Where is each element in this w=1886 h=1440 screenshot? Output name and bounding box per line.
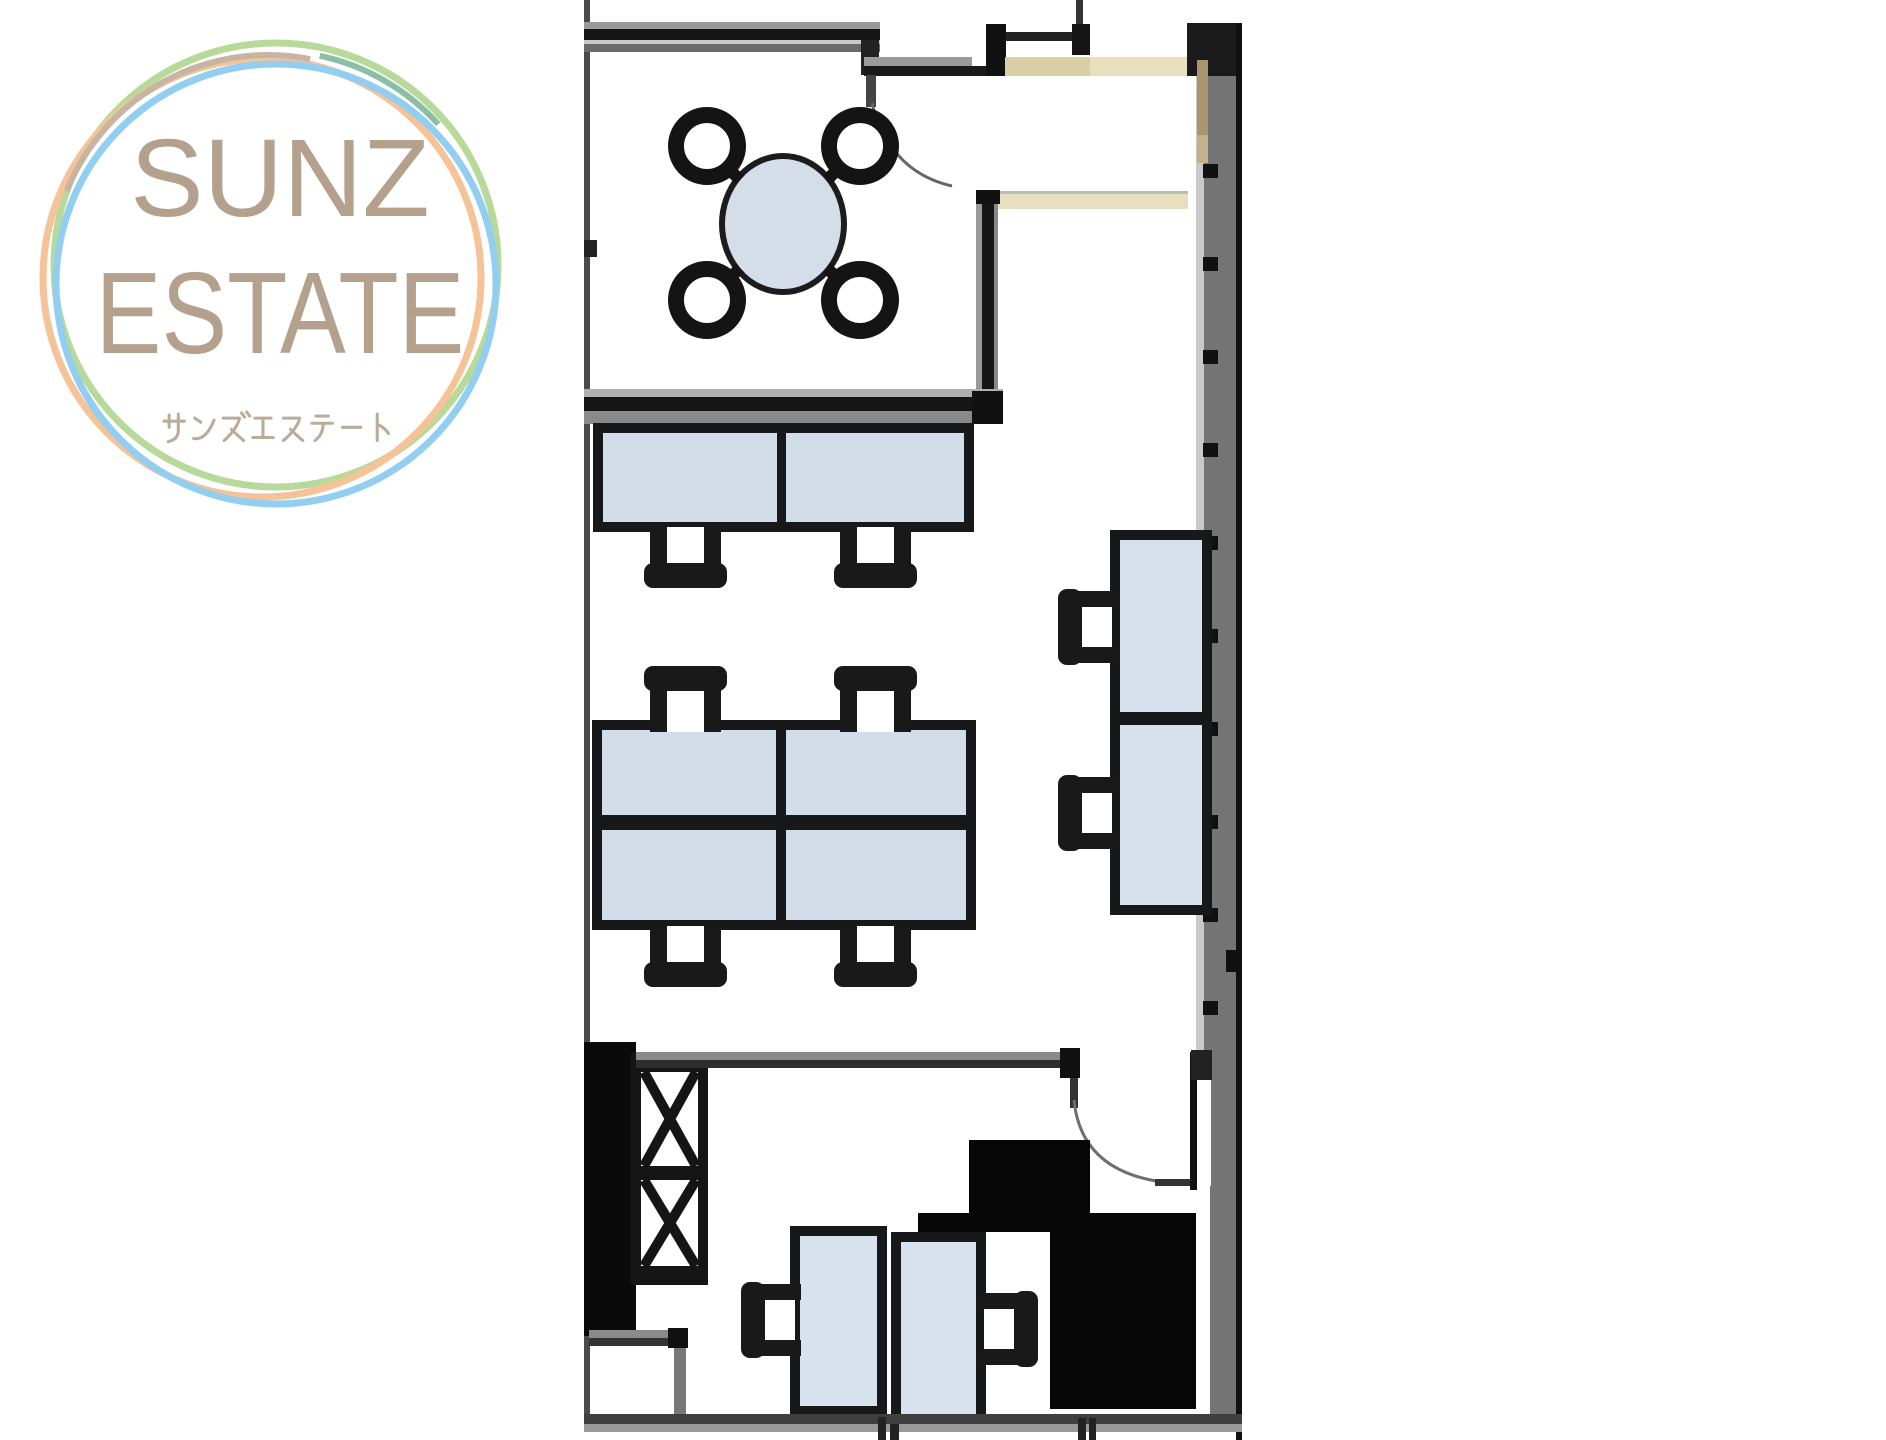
- svg-text:SUNZ: SUNZ: [130, 117, 429, 240]
- svg-text:ESTATE: ESTATE: [96, 248, 465, 377]
